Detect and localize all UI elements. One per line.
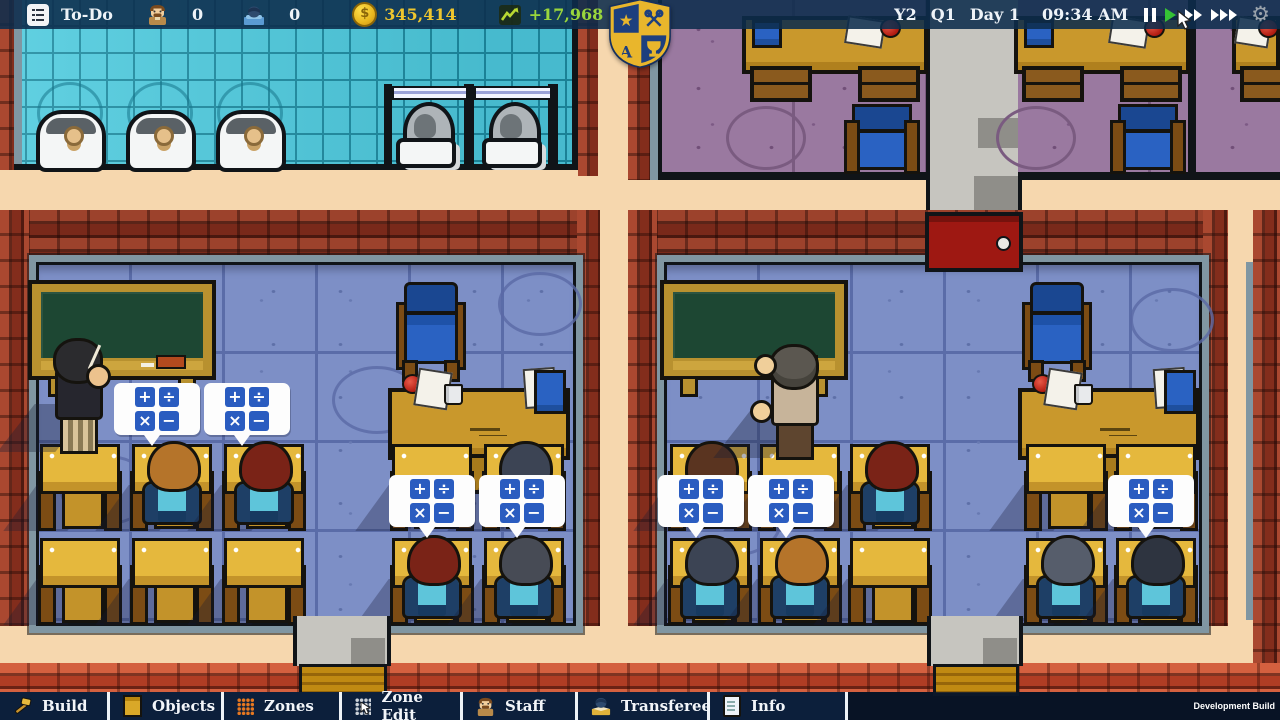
bubble-tail bbox=[144, 435, 160, 446]
school-crest-shield: ★ A bbox=[606, 0, 674, 72]
tab-info[interactable]: Info bbox=[710, 692, 848, 720]
minus-symbol: − bbox=[159, 411, 179, 431]
teacher[interactable] bbox=[46, 342, 106, 454]
info-document-icon bbox=[723, 695, 741, 717]
mouse-cursor bbox=[1176, 10, 1191, 35]
student[interactable] bbox=[490, 535, 558, 617]
desk-seat bbox=[154, 585, 196, 623]
date-year: Y2 bbox=[894, 5, 917, 24]
floor-circle bbox=[726, 106, 806, 170]
plus-symbol: + bbox=[500, 479, 520, 499]
concrete-patch bbox=[351, 638, 385, 664]
book bbox=[1164, 370, 1196, 414]
divide-symbol: ÷ bbox=[159, 387, 179, 407]
chair-back bbox=[852, 104, 912, 132]
student[interactable] bbox=[856, 441, 924, 523]
divide-symbol: ÷ bbox=[703, 479, 723, 499]
desk-top bbox=[40, 538, 120, 588]
divide-symbol: ÷ bbox=[434, 479, 454, 499]
desk-drawer bbox=[1120, 66, 1182, 102]
stall-rail bbox=[474, 86, 552, 100]
sink[interactable] bbox=[126, 110, 196, 172]
fastest-forward-icon[interactable] bbox=[1211, 9, 1237, 21]
play-icon[interactable] bbox=[1165, 8, 1176, 22]
game-screen: + ÷ × − + ÷ × − + ÷ × − + ÷ × − + ÷ × bbox=[0, 0, 1280, 720]
gear-icon[interactable]: ⚙ bbox=[1251, 4, 1270, 25]
speech-bubble-math: + ÷ × − bbox=[114, 383, 200, 435]
desk-seat bbox=[62, 585, 104, 623]
speech-bubble-math: + ÷ × − bbox=[204, 383, 290, 435]
chair-seat bbox=[852, 130, 912, 170]
dev-build-label: Development Build bbox=[1193, 701, 1275, 712]
toilet-tank bbox=[482, 138, 542, 168]
speech-bubble-math: + ÷ × − bbox=[1108, 475, 1194, 527]
tab-zones-label: Zones bbox=[264, 697, 314, 715]
teacher-hand bbox=[754, 354, 777, 377]
toilet[interactable] bbox=[396, 102, 456, 164]
concrete-patch bbox=[974, 176, 1018, 210]
chair-back bbox=[1030, 282, 1084, 314]
chalkboard-leg bbox=[680, 376, 698, 397]
desk-scratches bbox=[470, 428, 500, 431]
student[interactable] bbox=[1032, 535, 1100, 617]
speech-bubble-math: + ÷ × − bbox=[389, 475, 475, 527]
sink[interactable] bbox=[216, 110, 286, 172]
student-hair bbox=[499, 535, 553, 586]
teacher-hand bbox=[750, 400, 773, 423]
chair-seat bbox=[1030, 312, 1084, 364]
door-knob bbox=[996, 236, 1011, 251]
red-door[interactable] bbox=[925, 212, 1023, 272]
blue-chair[interactable] bbox=[1112, 104, 1184, 172]
tab-transferee[interactable]: Transferee bbox=[578, 692, 710, 720]
student-hair bbox=[775, 535, 829, 586]
game-viewport: + ÷ × − + ÷ × − + ÷ × − + ÷ × − + ÷ × bbox=[0, 0, 1280, 720]
desk-seat bbox=[62, 491, 104, 529]
wall-brick bbox=[1253, 210, 1280, 692]
divide-symbol: ÷ bbox=[793, 479, 813, 499]
plus-symbol: + bbox=[135, 387, 155, 407]
minus-symbol: − bbox=[703, 503, 723, 523]
wall-brick bbox=[628, 210, 657, 626]
student[interactable] bbox=[1122, 535, 1190, 617]
concrete-patch bbox=[983, 638, 1017, 664]
student-hair bbox=[1131, 535, 1185, 586]
mug bbox=[1074, 384, 1093, 405]
student[interactable] bbox=[676, 535, 744, 617]
mug bbox=[444, 384, 463, 405]
tab-transferee-label: Transferee bbox=[621, 697, 711, 715]
student-hair bbox=[685, 535, 739, 586]
speech-bubble-math: + ÷ × − bbox=[748, 475, 834, 527]
tab-zone-edit[interactable]: Zone Edit bbox=[342, 692, 463, 720]
doorway-path bbox=[926, 0, 1022, 210]
desk-drawer bbox=[1022, 66, 1084, 102]
student-desk[interactable] bbox=[222, 535, 306, 621]
money-delta: +17,968 bbox=[529, 5, 604, 24]
chair-arm bbox=[1110, 120, 1126, 174]
speech-bubble-math: + ÷ × − bbox=[479, 475, 565, 527]
tab-staff-label: Staff bbox=[505, 697, 545, 715]
divide-symbol: ÷ bbox=[524, 479, 544, 499]
student-desk[interactable] bbox=[1114, 535, 1198, 621]
chair-seat bbox=[1118, 130, 1178, 170]
chair-back bbox=[1118, 104, 1178, 132]
speech-bubble-math: + ÷ × − bbox=[658, 475, 744, 527]
plus-symbol: + bbox=[1129, 479, 1149, 499]
bottom-toolbar: Build Objects Zones Zone Edit Staff Tran… bbox=[0, 692, 1280, 720]
hud-right-group: Y2 Q1 Day 1 09:34 AM ⚙ bbox=[894, 4, 1280, 25]
todo-label[interactable]: To-Do bbox=[61, 5, 113, 24]
svg-text:★: ★ bbox=[619, 11, 634, 30]
tab-info-label: Info bbox=[751, 697, 785, 715]
date-day: Day 1 bbox=[970, 5, 1020, 24]
divide-symbol: ÷ bbox=[1153, 479, 1173, 499]
chalk bbox=[141, 363, 154, 367]
desk-top bbox=[224, 538, 304, 588]
wall-brick bbox=[0, 210, 600, 262]
multiply-symbol: × bbox=[500, 503, 520, 523]
cabinet-icon bbox=[123, 695, 142, 717]
dollar-sign: $ bbox=[360, 6, 369, 21]
tab-build[interactable]: Build bbox=[0, 692, 110, 720]
desk-seat bbox=[246, 585, 288, 623]
staff-person-icon bbox=[476, 696, 495, 717]
multiply-symbol: × bbox=[410, 503, 430, 523]
student[interactable] bbox=[398, 535, 466, 617]
bubble-tail bbox=[688, 527, 704, 538]
bubble-tail bbox=[509, 527, 525, 538]
student-count: 0 bbox=[289, 5, 300, 24]
tab-staff[interactable]: Staff bbox=[463, 692, 578, 720]
student[interactable] bbox=[766, 535, 834, 617]
book bbox=[534, 370, 566, 414]
trend-chart-icon bbox=[499, 5, 521, 25]
pause-icon[interactable] bbox=[1144, 8, 1156, 22]
plus-symbol: + bbox=[769, 479, 789, 499]
divide-symbol: ÷ bbox=[249, 387, 269, 407]
student-desk[interactable] bbox=[848, 441, 932, 527]
tab-objects-label: Objects bbox=[152, 697, 215, 715]
bubble-tail bbox=[234, 435, 250, 446]
zone-grid-icon bbox=[237, 698, 254, 715]
blue-chair[interactable] bbox=[846, 104, 918, 172]
plus-symbol: + bbox=[225, 387, 245, 407]
hud-left-group: To-Do 0 0 $ 345,414 +17,968 bbox=[0, 2, 603, 27]
toilet[interactable] bbox=[482, 102, 542, 164]
chair-arm bbox=[844, 120, 860, 174]
student-desk[interactable] bbox=[482, 535, 566, 621]
floor-circle bbox=[1130, 288, 1214, 352]
desk-top bbox=[850, 538, 930, 588]
door-opening[interactable] bbox=[927, 616, 1023, 666]
chair-arm bbox=[904, 120, 920, 174]
blue-chair[interactable] bbox=[1026, 282, 1088, 382]
tab-zone-edit-label: Zone Edit bbox=[381, 688, 460, 720]
multiply-symbol: × bbox=[135, 411, 155, 431]
student[interactable] bbox=[230, 441, 298, 523]
student-hair bbox=[407, 535, 461, 586]
multiply-symbol: × bbox=[679, 503, 699, 523]
tab-build-label: Build bbox=[42, 697, 87, 715]
zone-edit-grid-cursor-icon bbox=[355, 698, 371, 715]
desk-seat bbox=[872, 585, 914, 623]
minus-symbol: − bbox=[524, 503, 544, 523]
date-quarter: Q1 bbox=[931, 5, 956, 24]
teacher-hand bbox=[86, 364, 111, 389]
student-count-icon bbox=[243, 4, 265, 26]
chair-back bbox=[404, 282, 458, 314]
student-hair bbox=[1041, 535, 1095, 586]
minus-symbol: − bbox=[793, 503, 813, 523]
student-hair bbox=[865, 441, 919, 492]
student[interactable] bbox=[138, 441, 206, 523]
wall-brick-south bbox=[0, 663, 1280, 692]
bubble-tail bbox=[1138, 527, 1154, 538]
chair-arm bbox=[1170, 120, 1186, 174]
teacher-count-icon bbox=[147, 3, 168, 26]
todo-list-icon[interactable] bbox=[27, 4, 49, 26]
multiply-symbol: × bbox=[225, 411, 245, 431]
student-desk[interactable] bbox=[848, 535, 932, 621]
wall-trim bbox=[1246, 262, 1253, 620]
multiply-symbol: × bbox=[769, 503, 789, 523]
desk-top bbox=[132, 538, 212, 588]
floor-circle bbox=[996, 106, 1076, 170]
hammer-icon bbox=[13, 697, 32, 716]
wall-brick bbox=[577, 210, 600, 626]
student-desk[interactable] bbox=[222, 441, 306, 527]
chair-seat bbox=[404, 312, 458, 364]
coin-icon: $ bbox=[352, 2, 377, 27]
multiply-symbol: × bbox=[1129, 503, 1149, 523]
tab-zones[interactable]: Zones bbox=[224, 692, 342, 720]
sink[interactable] bbox=[36, 110, 106, 172]
minus-symbol: − bbox=[249, 411, 269, 431]
door-opening[interactable] bbox=[293, 616, 391, 666]
list-icon-glyph bbox=[31, 8, 45, 22]
desk-top bbox=[1026, 444, 1106, 494]
student-hair bbox=[239, 441, 293, 492]
transferee-student-icon bbox=[591, 696, 611, 716]
teacher-count: 0 bbox=[192, 5, 203, 24]
desk-drawer bbox=[750, 66, 812, 102]
bubble-tail bbox=[778, 527, 794, 538]
stall-post bbox=[384, 84, 392, 166]
eraser bbox=[156, 355, 186, 369]
wall-brick bbox=[1203, 210, 1228, 626]
desk-scratches bbox=[1100, 428, 1130, 431]
plus-symbol: + bbox=[679, 479, 699, 499]
floor-circle bbox=[498, 272, 582, 336]
stall-rail bbox=[392, 86, 468, 100]
money-value: 345,414 bbox=[384, 5, 456, 24]
plus-symbol: + bbox=[410, 479, 430, 499]
bubble-tail bbox=[419, 527, 435, 538]
tab-objects[interactable]: Objects bbox=[110, 692, 224, 720]
blue-chair[interactable] bbox=[400, 282, 462, 382]
toilet-tank bbox=[396, 138, 456, 168]
minus-symbol: − bbox=[1153, 503, 1173, 523]
clock-time: 09:34 AM bbox=[1042, 5, 1128, 24]
desk-drawer bbox=[1240, 66, 1280, 102]
desk-drawer bbox=[858, 66, 920, 102]
student-hair bbox=[147, 441, 201, 492]
minus-symbol: − bbox=[434, 503, 454, 523]
teacher[interactable] bbox=[762, 348, 822, 460]
